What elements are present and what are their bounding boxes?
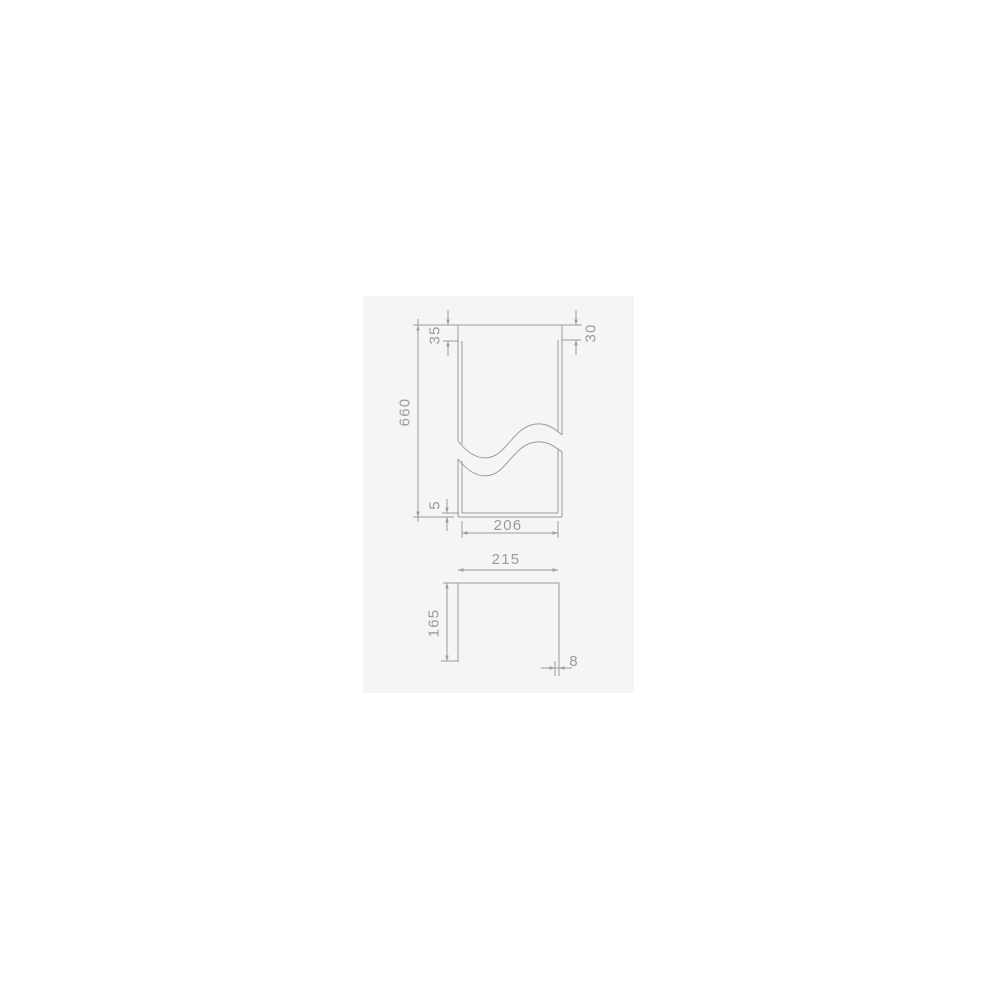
dim-overall-width-label: 215 bbox=[492, 551, 521, 568]
dim-165-arrow-down bbox=[445, 656, 448, 662]
dim-depth-label: 165 bbox=[426, 609, 443, 638]
dim-165-arrow-up bbox=[445, 583, 448, 589]
dim-35-arrow-up bbox=[446, 341, 449, 347]
technical-drawing: 660 35 30 5 bbox=[363, 296, 634, 693]
dim-30-arrow-down bbox=[574, 320, 577, 326]
dimension-wall-thickness: 8 bbox=[541, 653, 579, 670]
plan-view bbox=[443, 583, 559, 676]
dim-inset-right-label: 30 bbox=[583, 323, 600, 342]
dim-215-arrow-right bbox=[553, 568, 559, 571]
dim-5-arrow-down bbox=[445, 508, 448, 514]
dimension-base-gap: 5 bbox=[427, 499, 460, 531]
dim-206-arrow-left bbox=[462, 531, 468, 534]
front-view bbox=[413, 325, 582, 517]
dim-8-arrow-left bbox=[559, 666, 565, 669]
dimension-inset-right: 30 bbox=[561, 310, 600, 355]
dimension-inner-width: 206 bbox=[462, 517, 558, 538]
dim-660-arrow-up bbox=[416, 325, 419, 331]
dim-215-arrow-left bbox=[458, 568, 464, 571]
dim-660-arrow-down bbox=[416, 512, 419, 518]
dim-8-arrow-right bbox=[550, 666, 556, 669]
dim-inset-left-label: 35 bbox=[427, 325, 444, 344]
dim-overall-height-label: 660 bbox=[397, 398, 414, 427]
dimension-depth: 165 bbox=[426, 583, 460, 661]
dimension-inset-left: 35 bbox=[427, 310, 460, 356]
drawing-canvas: 660 35 30 5 bbox=[363, 296, 634, 693]
dim-5-arrow-up bbox=[445, 517, 448, 523]
dim-206-arrow-right bbox=[553, 531, 559, 534]
dim-wall-thickness-label: 8 bbox=[569, 653, 579, 670]
dim-base-gap-label: 5 bbox=[427, 500, 444, 510]
dim-35-arrow-down bbox=[446, 320, 449, 326]
dimension-overall-height: 660 bbox=[397, 319, 455, 522]
dim-30-arrow-up bbox=[574, 340, 577, 346]
dimension-overall-width: 215 bbox=[458, 551, 558, 572]
break-line-lower bbox=[458, 442, 562, 476]
break-line-upper bbox=[458, 424, 562, 458]
dim-inner-width-label: 206 bbox=[494, 517, 523, 534]
